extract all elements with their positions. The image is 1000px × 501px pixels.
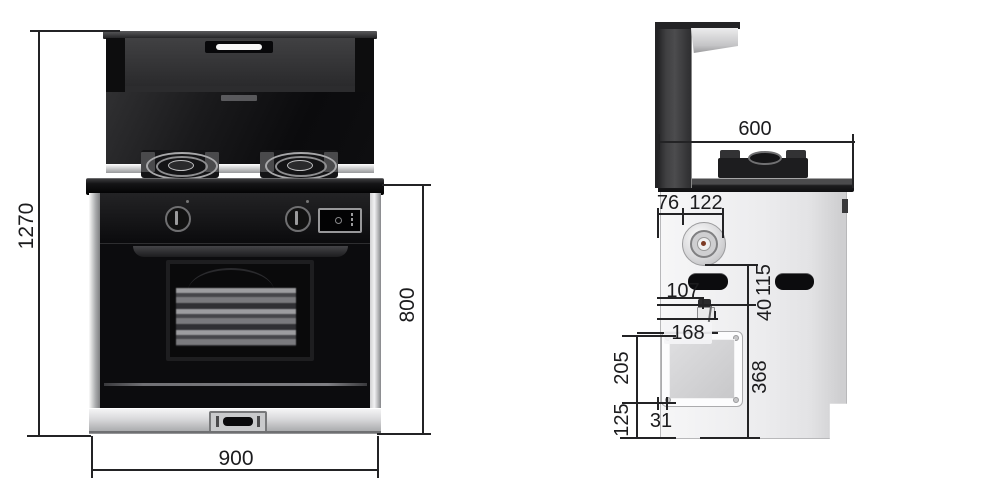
side-hood-visor	[691, 28, 738, 53]
side-vent-slot-rear	[775, 273, 814, 290]
dim-ext-40-top	[657, 304, 756, 306]
side-view: 600 76 122 115 40 107 168 31 205 125 368	[0, 0, 1000, 501]
side-gas-valve-knob	[682, 222, 726, 266]
dim-tick-31-right	[666, 397, 668, 410]
dim-tick-31-left	[657, 397, 659, 410]
dim-ext-40-bottom	[657, 318, 718, 320]
dim-line-600	[659, 141, 855, 143]
access-panel-inner	[669, 339, 735, 399]
side-burner-ring	[748, 151, 782, 165]
dimension-diagram: 1270 800 900	[0, 0, 1000, 501]
dim-label-knob-span: 122	[687, 192, 725, 214]
dim-tick-76-122-mid	[682, 208, 684, 225]
dim-line-vertical-left	[636, 336, 638, 438]
dim-ext-panel-top	[622, 335, 676, 337]
valve-center-dot	[701, 241, 706, 246]
side-hood-panel	[655, 22, 692, 188]
dim-tick-fitting	[714, 311, 716, 319]
dim-line-vertical-right	[747, 264, 749, 438]
dim-label-panel-offset: 168	[664, 322, 712, 344]
dim-label-panel-height: 205	[611, 343, 633, 393]
dim-line-107	[657, 297, 704, 299]
dim-tick-600-right	[852, 134, 854, 188]
dim-label-panel-inset: 31	[645, 410, 677, 432]
dim-tick-122-right	[722, 208, 724, 238]
dim-label-lower-height: 368	[749, 352, 771, 402]
dim-tick-76-left	[657, 208, 659, 238]
dim-label-inlet-drop: 40	[754, 285, 776, 335]
side-hood-top-cap	[655, 22, 740, 29]
dim-label-depth: 600	[725, 118, 785, 140]
dim-line-76-122	[658, 213, 724, 215]
dim-baseline-right	[700, 437, 760, 439]
dim-ext-slot-top	[705, 264, 758, 266]
side-hinge-tab	[842, 199, 848, 213]
panel-screw-br	[733, 397, 739, 403]
dim-tick-600-left	[658, 134, 660, 150]
dim-tick-107-right	[702, 297, 704, 309]
dim-baseline-left	[620, 437, 676, 439]
